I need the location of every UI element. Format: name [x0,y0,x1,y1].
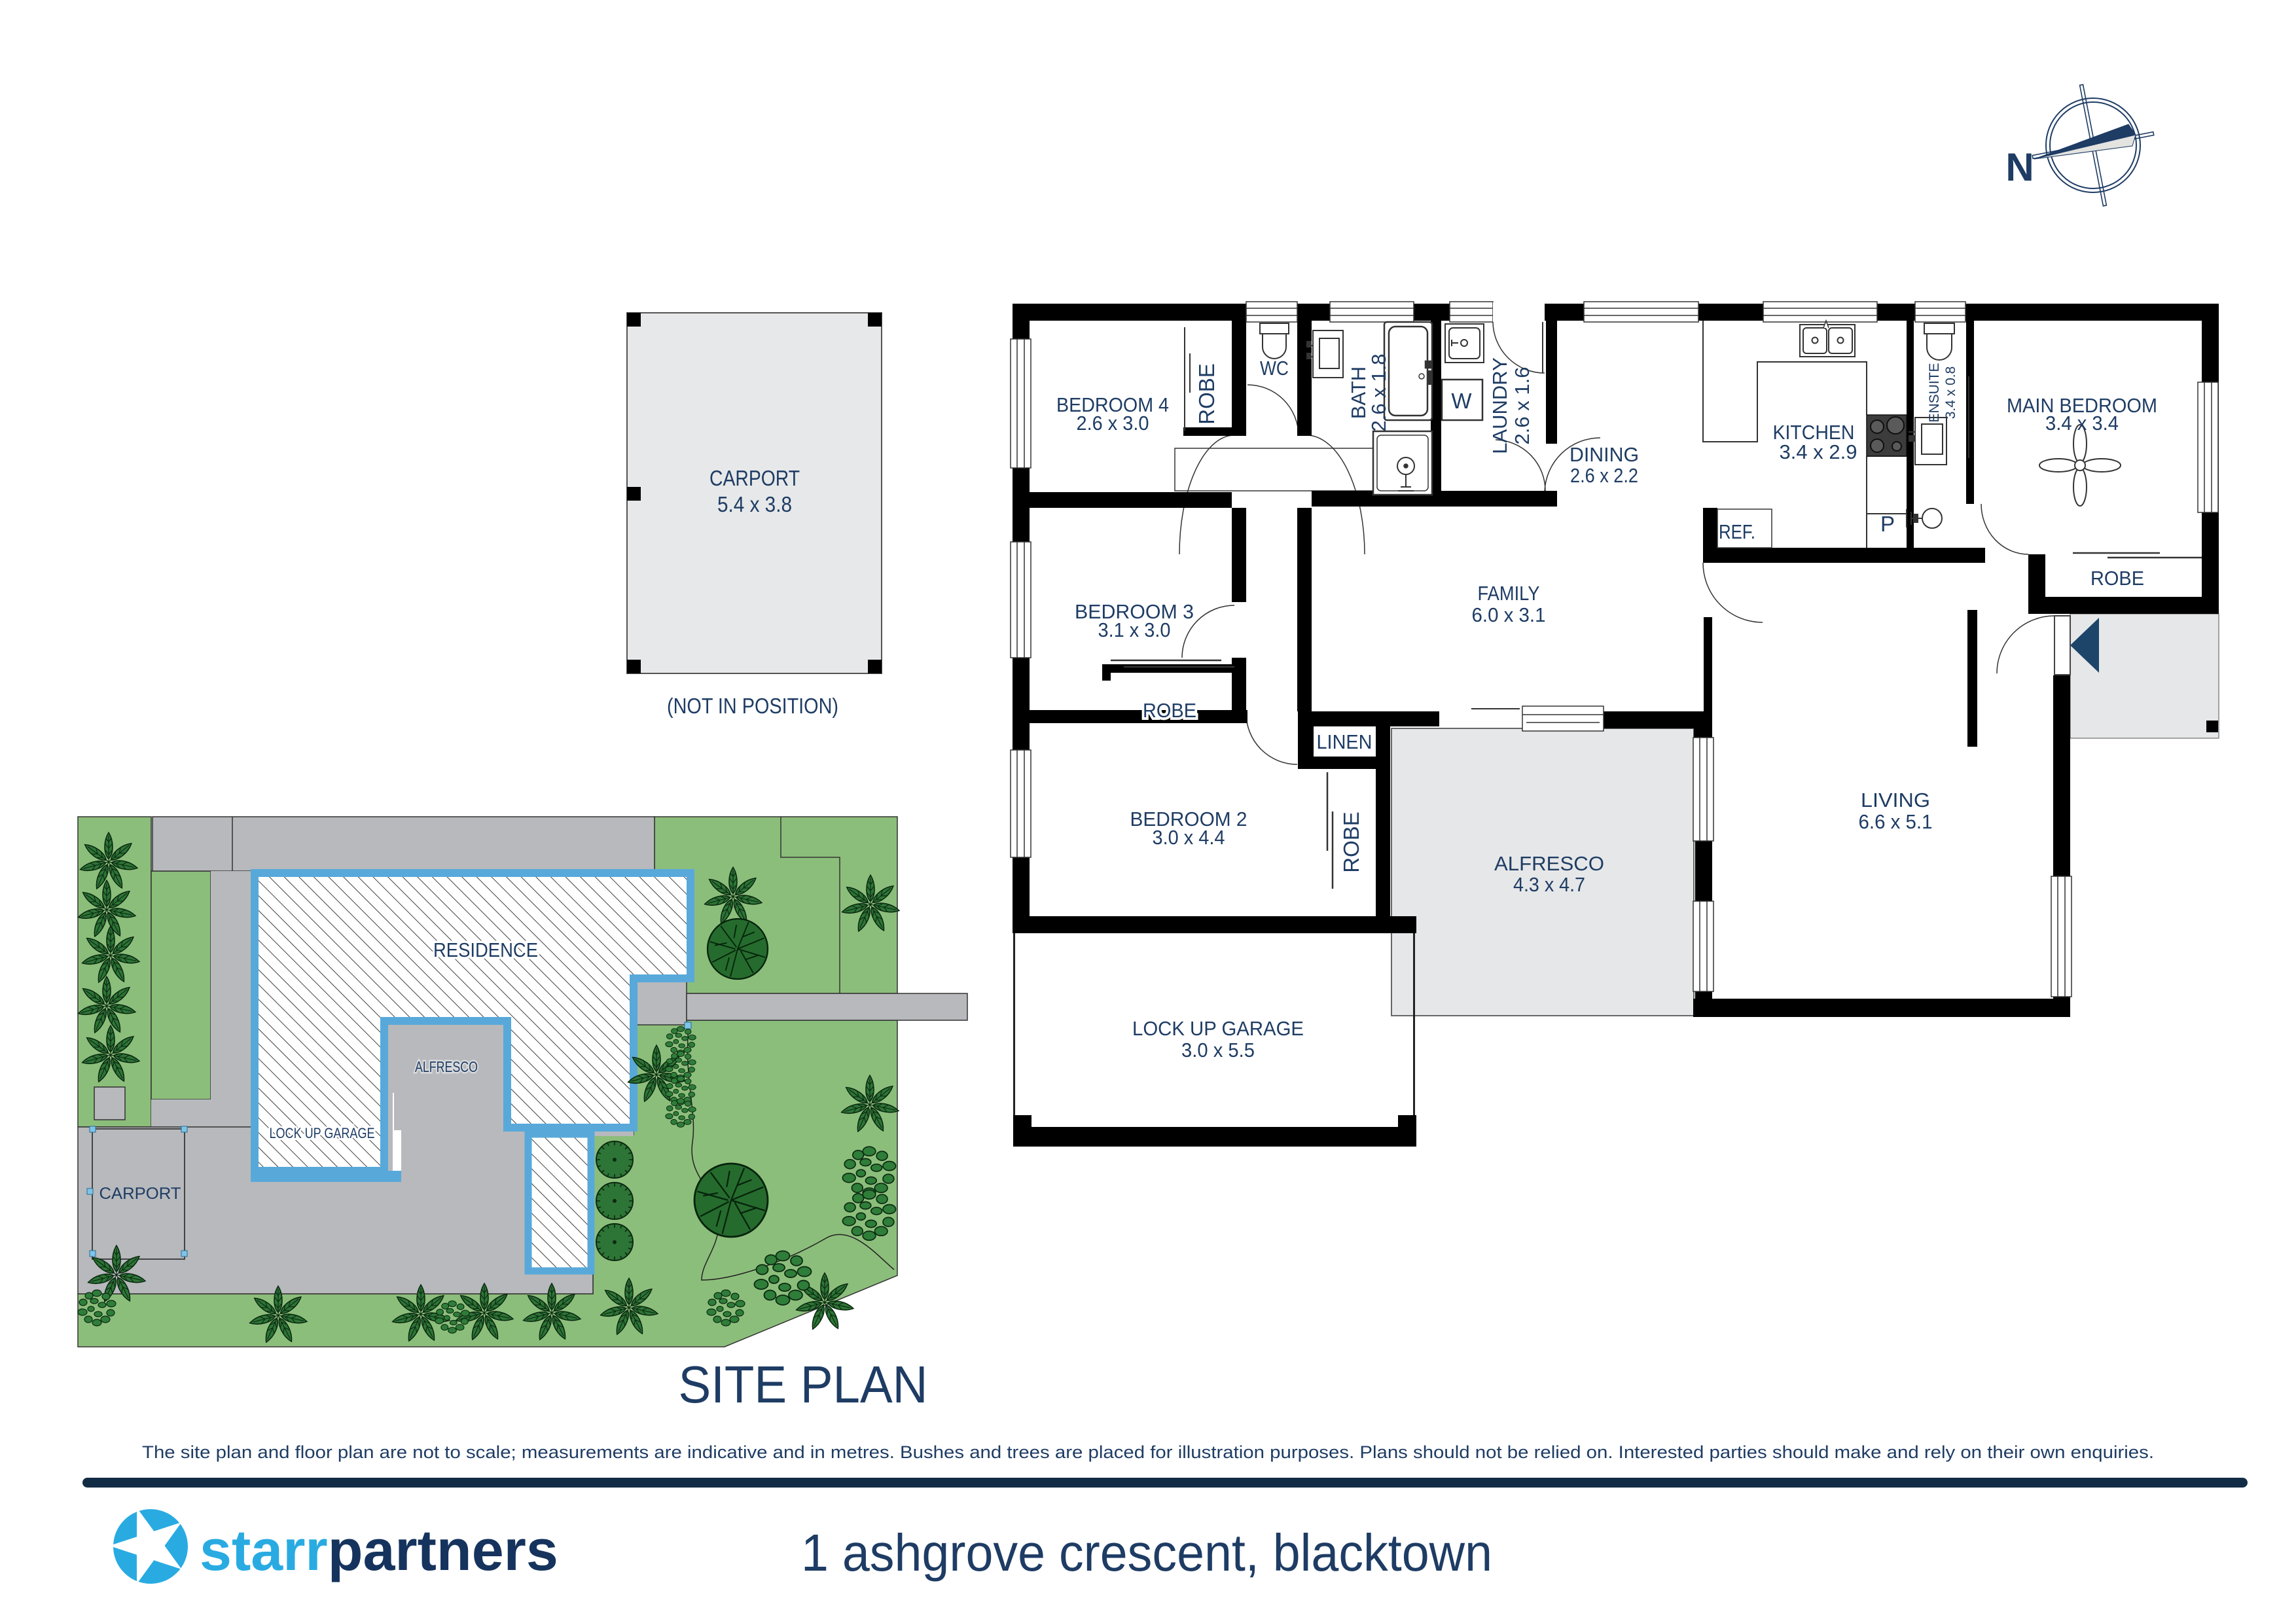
svg-text:3.1 x 3.0: 3.1 x 3.0 [1098,618,1171,641]
svg-text:N: N [2005,145,2034,189]
svg-text:RESIDENCE: RESIDENCE [433,938,538,961]
svg-text:FAMILY: FAMILY [1478,582,1540,605]
svg-text:The site plan and floor plan a: The site plan and floor plan are not to … [142,1442,2154,1462]
svg-text:WC: WC [1260,357,1289,380]
svg-text:LAUNDRY: LAUNDRY [1488,357,1511,454]
svg-text:3.4 x 3.4: 3.4 x 3.4 [2045,412,2119,435]
svg-text:LOCK UP GARAGE: LOCK UP GARAGE [270,1125,375,1141]
svg-text:W: W [1451,389,1472,413]
svg-text:3.0 x 4.4: 3.0 x 4.4 [1153,826,1225,849]
svg-text:ROBE: ROBE [1143,699,1196,722]
svg-text:6.0 x 3.1: 6.0 x 3.1 [1472,603,1546,626]
svg-text:2.6 x 1.6: 2.6 x 1.6 [1511,367,1534,445]
svg-text:P: P [1880,512,1895,536]
svg-text:ROBE: ROBE [1339,811,1363,873]
svg-text:REF.: REF. [1719,520,1755,543]
svg-text:3.4 x 2.9: 3.4 x 2.9 [1780,440,1857,463]
svg-text:DINING: DINING [1570,443,1639,466]
svg-text:ROBE: ROBE [2090,567,2144,590]
svg-text:2.6 x 3.0: 2.6 x 3.0 [1077,412,1149,435]
svg-text:LOCK UP GARAGE: LOCK UP GARAGE [1132,1017,1304,1040]
svg-text:(NOT IN POSITION): (NOT IN POSITION) [667,694,838,718]
svg-text:1 ashgrove crescent, blacktown: 1 ashgrove crescent, blacktown [801,1524,1492,1582]
svg-text:2.6 x 2.2: 2.6 x 2.2 [1570,464,1638,487]
svg-text:LIVING: LIVING [1861,789,1930,811]
svg-text:ALFRESCO: ALFRESCO [415,1058,478,1075]
svg-text:ROBE: ROBE [1194,363,1219,425]
svg-text:CARPORT: CARPORT [709,466,800,490]
svg-text:starrpartners: starrpartners [200,1518,558,1582]
svg-text:ALFRESCO: ALFRESCO [1494,852,1604,875]
svg-text:ENSUITE: ENSUITE [1927,363,1942,422]
svg-text:3.4 x 0.8: 3.4 x 0.8 [1943,366,1958,419]
svg-text:4.3 x 4.7: 4.3 x 4.7 [1513,873,1585,896]
svg-text:2.6 x 1.8: 2.6 x 1.8 [1367,354,1390,432]
svg-text:6.6 x 5.1: 6.6 x 5.1 [1859,810,1933,833]
svg-text:5.4 x 3.8: 5.4 x 3.8 [717,492,792,516]
svg-text:SITE PLAN: SITE PLAN [679,1355,928,1414]
svg-text:3.0 x 5.5: 3.0 x 5.5 [1181,1039,1255,1061]
svg-text:CARPORT: CARPORT [99,1185,181,1203]
svg-text:BATH: BATH [1347,366,1370,419]
svg-text:LINEN: LINEN [1317,730,1372,753]
